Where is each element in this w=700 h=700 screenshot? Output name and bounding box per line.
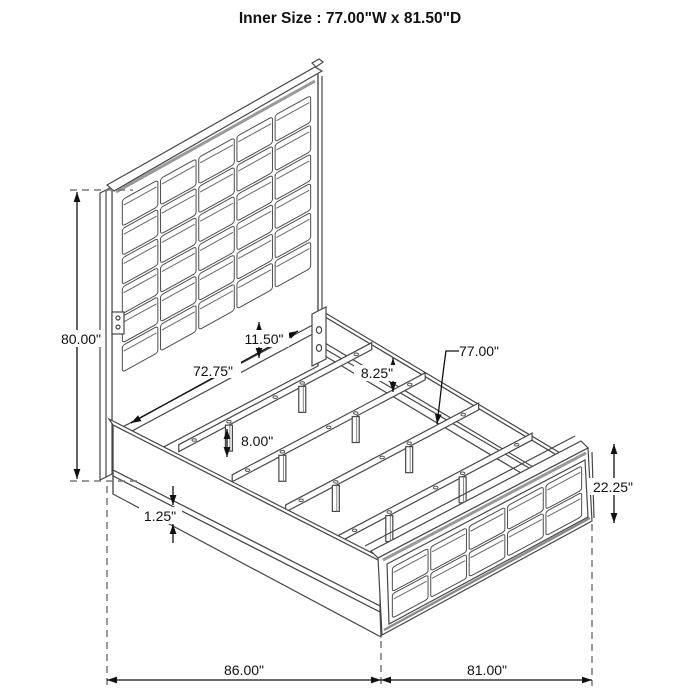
bracket-hole bbox=[116, 316, 120, 320]
label-overall-width: 81.00" bbox=[467, 662, 507, 678]
screw-hole bbox=[407, 442, 411, 445]
screw-hole bbox=[461, 413, 465, 416]
slat-support-leg bbox=[279, 455, 286, 481]
screw-hole bbox=[280, 450, 284, 453]
slat-support-leg bbox=[332, 485, 339, 511]
screw-hole bbox=[334, 481, 338, 484]
label-leg-height: 8.00" bbox=[241, 433, 273, 449]
label-panel-gap: 11.50" bbox=[245, 331, 284, 347]
slat-support-leg bbox=[406, 447, 413, 473]
bracket-hole bbox=[316, 345, 321, 352]
page-title: Inner Size : 77.00"W x 81.50"D bbox=[239, 10, 461, 27]
screw-hole bbox=[299, 499, 303, 502]
screw-hole bbox=[514, 443, 518, 446]
bracket-hole bbox=[316, 327, 321, 334]
label-headboard-height: 80.00" bbox=[61, 331, 101, 347]
slat-support-leg bbox=[352, 417, 359, 443]
headboard bbox=[100, 59, 323, 480]
label-base-trim: 1.25" bbox=[144, 508, 176, 524]
screw-hole bbox=[273, 396, 277, 399]
label-slat-length: 77.00" bbox=[459, 343, 499, 359]
label-rail-height: 8.25" bbox=[361, 365, 393, 381]
screw-hole bbox=[227, 420, 231, 423]
bracket-hole bbox=[116, 325, 120, 329]
bed-frame-near-side bbox=[109, 419, 381, 637]
screw-hole bbox=[433, 486, 437, 489]
screw-hole bbox=[354, 412, 358, 415]
diagram-page: 80.00" 11.50" 72.75" 8.25" 77.00" 8.00" … bbox=[0, 0, 700, 700]
label-inner-width: 72.75" bbox=[193, 363, 233, 379]
label-overall-depth: 86.00" bbox=[224, 662, 264, 678]
slat-support-leg bbox=[459, 477, 466, 503]
screw-hole bbox=[380, 456, 384, 459]
screw-hole bbox=[408, 383, 412, 386]
screw-hole bbox=[387, 511, 391, 514]
screw-hole bbox=[192, 439, 196, 442]
screw-hole bbox=[245, 469, 249, 472]
left-post-bracket bbox=[112, 312, 124, 334]
screw-hole bbox=[300, 382, 304, 385]
screw-hole bbox=[352, 529, 356, 532]
headboard-top-tab bbox=[312, 59, 323, 67]
right-post-bracket bbox=[312, 307, 326, 366]
screw-hole bbox=[327, 426, 331, 429]
label-footboard-height: 22.25" bbox=[593, 479, 633, 495]
screw-hole bbox=[354, 353, 358, 356]
bed-dimension-diagram: 80.00" 11.50" 72.75" 8.25" 77.00" 8.00" … bbox=[0, 0, 700, 700]
screw-hole bbox=[460, 472, 464, 475]
slat-support-leg bbox=[299, 386, 306, 412]
slat-support-leg bbox=[386, 516, 393, 542]
